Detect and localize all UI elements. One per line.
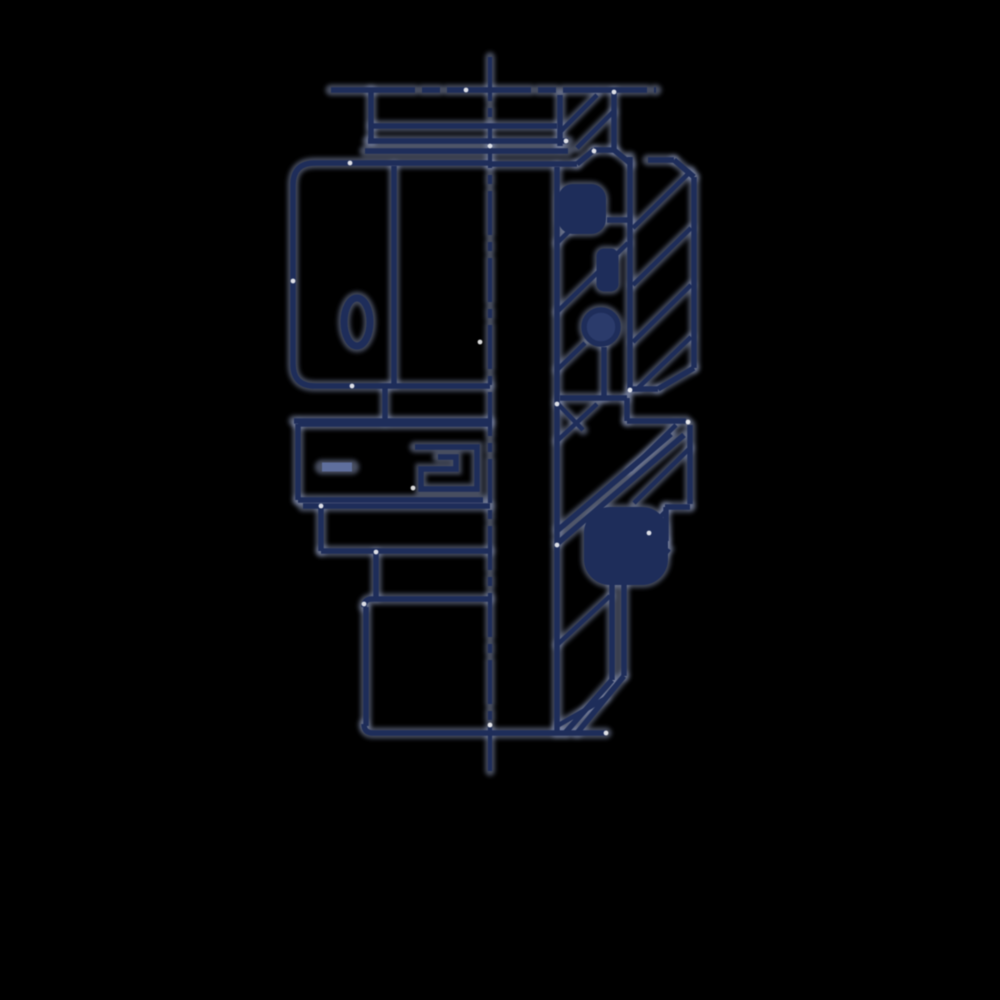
glint-artifact: [628, 388, 633, 393]
glint-artifact: [411, 486, 416, 491]
seal-square-bottom: [605, 528, 647, 564]
glint-artifact: [348, 161, 353, 166]
glint-artifact: [319, 504, 324, 509]
glint-artifact: [478, 340, 483, 345]
glint-artifact: [350, 384, 355, 389]
technical-drawing: [0, 0, 1000, 1000]
glint-artifact: [555, 543, 560, 548]
glint-artifact: [564, 139, 569, 144]
drawing-viewport: [0, 0, 1000, 1000]
glint-artifact: [291, 279, 296, 284]
glint-artifact: [686, 420, 691, 425]
glint-artifact: [362, 602, 367, 607]
glint-artifact: [555, 402, 560, 407]
glint-artifact: [374, 550, 379, 555]
glint-artifact: [604, 731, 609, 736]
glint-artifact: [612, 90, 617, 95]
o-ring-section: [584, 310, 618, 344]
glint-artifact: [488, 723, 493, 728]
glint-artifact: [464, 88, 469, 93]
glint-artifact: [592, 149, 597, 154]
glint-artifact: [647, 531, 652, 536]
glint-artifact: [488, 144, 493, 149]
